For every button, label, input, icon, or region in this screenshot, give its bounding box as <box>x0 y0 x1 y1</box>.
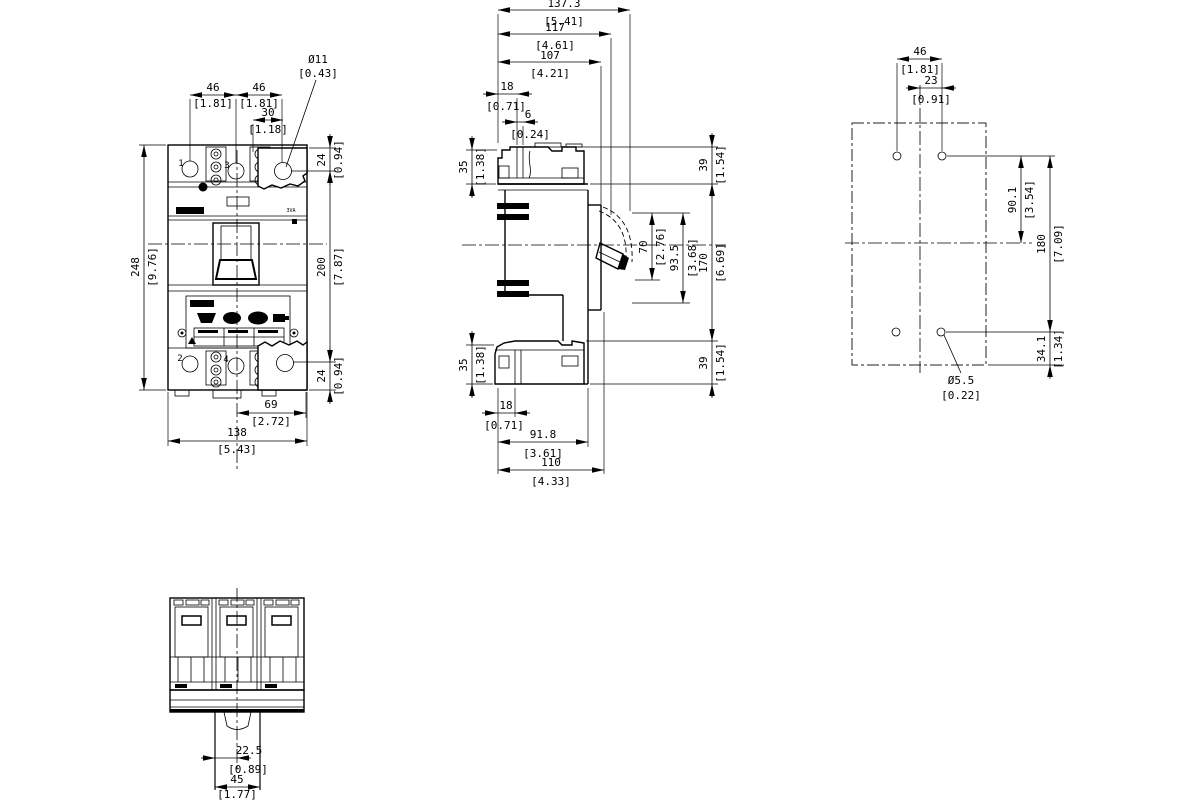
din-clip-tab <box>497 203 529 209</box>
dim-text: 117 <box>545 21 565 34</box>
terminal-plug-icon <box>273 314 289 322</box>
mounting-hole <box>937 328 945 336</box>
dim-text: 35 <box>457 358 470 371</box>
terminal-2-hole <box>182 356 198 372</box>
dim-drill-upper-90-1: 90.1 [3.54] <box>1006 156 1036 243</box>
dim-text: [3.54] <box>1023 180 1036 220</box>
dim-text: 46 <box>913 45 926 58</box>
dim-text: 18 <box>500 80 513 93</box>
dim-text: 45 <box>230 773 243 786</box>
pole-sections <box>174 600 299 657</box>
terminal-1-hole <box>182 161 198 177</box>
dim-front-width-half: 69 [2.72] <box>237 398 306 428</box>
dim-text: 39 <box>697 158 710 171</box>
dim-text: 35 <box>457 160 470 173</box>
din-clip-tab <box>497 214 529 220</box>
dim-text: 39 <box>697 356 710 369</box>
toggle-handle-front <box>213 223 259 285</box>
dim-text: 34.1 <box>1035 336 1048 363</box>
dim-text: 107 <box>540 49 560 62</box>
dim-text: [0.43] <box>298 67 338 80</box>
dim-text: [6.69] <box>714 243 727 283</box>
dim-text: [7.09] <box>1052 224 1065 264</box>
dimension-drawing: 1 3 3VA <box>0 0 1200 800</box>
dim-text: [5.43] <box>217 443 257 456</box>
dim-side-depth-117: 117 [4.61] <box>498 21 611 52</box>
terminal-label-4: 4 <box>223 355 228 365</box>
front-view: 1 3 3VA <box>129 53 345 470</box>
dim-front-ear-bottom: 24 [0.94] <box>315 348 345 404</box>
dim-text: 180 <box>1035 234 1048 254</box>
dim-text: 18 <box>499 399 512 412</box>
dim-text: 69 <box>264 398 277 411</box>
dim-text: [4.33] <box>531 475 571 488</box>
dim-text: 93.5 <box>668 245 681 272</box>
side-bottom-terminal <box>495 341 588 384</box>
dim-text: 138 <box>227 426 247 439</box>
dim-text: [0.24] <box>510 128 550 141</box>
mounting-hole <box>938 152 946 160</box>
dim-text: 23 <box>924 74 937 87</box>
dim-drill-lower-34-1: 34.1 [1.34] <box>1035 329 1065 379</box>
din-clip-tab <box>497 291 529 297</box>
dim-text: Ø11 <box>308 53 328 66</box>
product-marking: 3VA <box>286 208 295 214</box>
toggle-handle-side <box>588 205 632 310</box>
dim-side-terminal-bottom-35: 35 [1.38] <box>457 331 487 398</box>
handle-sweep-arc <box>599 211 626 259</box>
terminal-label-1: 1 <box>178 159 183 169</box>
dim-text: [1.38] <box>474 147 487 187</box>
round-connector-icon <box>223 312 241 324</box>
mounting-ear-bottom <box>258 341 307 390</box>
window <box>227 197 249 206</box>
terminal-4-hole <box>228 358 244 374</box>
dim-side-handle-70: 70 [2.76] <box>637 213 667 280</box>
dim-text: 70 <box>637 240 650 253</box>
dim-text: [9.76] <box>146 247 159 287</box>
dim-text: [1.81] <box>193 97 233 110</box>
dim-side-body-170: 170 [6.69] <box>697 184 727 341</box>
dim-drill-hole-pitch-46: 46 [1.81] <box>897 45 942 76</box>
dim-side-terminal-top-35: 35 [1.38] <box>457 136 487 198</box>
dim-text: [2.72] <box>251 415 291 428</box>
dim-front-height-mounting: 200 [7.87] <box>315 171 345 362</box>
dim-text: [7.87] <box>332 247 345 287</box>
dim-front-width-overall: 138 [5.43] <box>168 426 307 456</box>
dim-text: [4.21] <box>530 67 570 80</box>
dim-text: 46 <box>206 81 219 94</box>
dim-front-pitch-left: 46 [1.81] <box>190 81 236 110</box>
dim-bottom-rail-width-45: 45 [1.77] <box>215 773 260 800</box>
dim-text: [3.68] <box>686 238 699 278</box>
dim-text: [1.18] <box>248 123 288 136</box>
dim-side-depth-107: 107 [4.21] <box>498 49 601 80</box>
dim-bottom-rail-center-22-5: 22.5 [0.89] <box>201 744 268 776</box>
dim-text: 24 <box>315 369 328 383</box>
type-label <box>176 207 204 214</box>
dim-side-bottom-18: 18 [0.71] <box>482 399 530 432</box>
drilling-pattern: 46 [1.81] 23 [0.91] 90.1 [3.54] 180 [7.0… <box>845 45 1065 402</box>
dim-text: [0.94] <box>332 356 345 396</box>
round-connector-icon <box>248 312 268 325</box>
dim-text: [1.54] <box>714 145 727 185</box>
terminal-3-hole <box>228 163 244 179</box>
dim-side-depth-110: 110 [4.33] <box>498 456 604 488</box>
dim-text: [0.22] <box>941 389 981 402</box>
dim-text: [1.38] <box>474 345 487 385</box>
mounting-ear-top <box>258 148 307 189</box>
dim-text: [0.71] <box>484 419 524 432</box>
dim-text: [1.34] <box>1052 329 1065 369</box>
dim-text: 30 <box>261 106 274 119</box>
dim-text: 91.8 <box>530 428 557 441</box>
dim-text: [0.94] <box>332 140 345 180</box>
dim-text: 248 <box>129 257 142 277</box>
dim-text: 22.5 <box>236 744 263 757</box>
mounting-hole <box>893 152 901 160</box>
side-view: 137.3 [5.41] 117 [4.61] 107 [4.21] 18 [0… <box>457 0 727 488</box>
dim-text: 46 <box>252 81 265 94</box>
dim-text: 90.1 <box>1006 187 1019 214</box>
breaker-outline-phantom <box>852 123 986 365</box>
dim-text: [0.71] <box>486 100 526 113</box>
rating-plate <box>178 296 298 348</box>
dim-text: Ø5.5 <box>948 374 975 387</box>
side-top-terminal <box>498 143 584 184</box>
dim-text: [2.76] <box>654 227 667 267</box>
dim-drill-hole-dia: Ø5.5 [0.22] <box>941 335 981 402</box>
dim-drill-center-offset-23: 23 [0.91] <box>906 74 956 106</box>
dsub-connector-icon <box>197 313 216 323</box>
dim-side-cover-bottom-39: 39 [1.54] <box>697 341 727 398</box>
terminal-label-2: 2 <box>177 354 182 364</box>
dim-text: 24 <box>315 153 328 167</box>
dim-drill-vertical-180: 180 [7.09] <box>1035 156 1065 332</box>
side-body <box>497 184 588 384</box>
dim-front-pitch-right: 46 [1.81] <box>236 81 282 110</box>
mounting-hole <box>892 328 900 336</box>
terminal-label-3: 3 <box>224 161 229 171</box>
dim-text: 200 <box>315 257 328 277</box>
dim-side-handle-93-5: 93.5 [3.68] <box>668 213 699 303</box>
dim-text: 6 <box>525 108 532 121</box>
dim-text: 137.3 <box>547 0 580 10</box>
din-clip-tab <box>497 280 529 286</box>
dim-text: [1.54] <box>714 343 727 383</box>
test-button <box>199 183 208 192</box>
dim-text: 110 <box>541 456 561 469</box>
dim-text: [0.91] <box>911 93 951 106</box>
warning-triangle-icon <box>188 337 196 344</box>
bottom-view: 22.5 [0.89] 45 [1.77] <box>170 588 304 800</box>
dim-text: [1.77] <box>217 788 257 800</box>
dim-front-height-overall: 248 [9.76] <box>129 145 159 390</box>
